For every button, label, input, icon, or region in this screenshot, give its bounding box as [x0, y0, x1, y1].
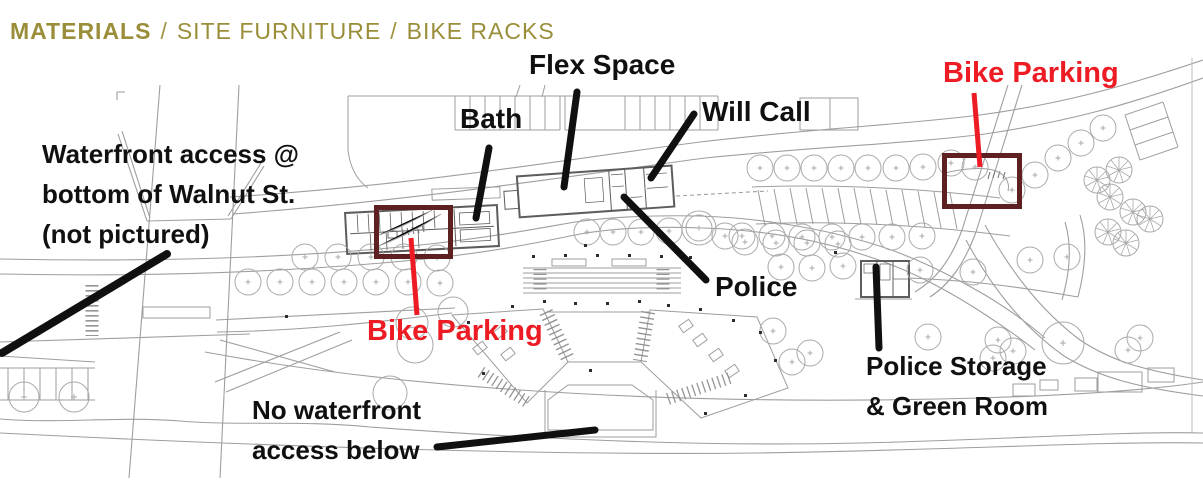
flex-space-label: Flex Space	[529, 50, 675, 80]
bike-parking-highlight-box-left	[374, 205, 453, 259]
police-label: Police	[715, 272, 797, 302]
site-plan-page: MATERIALS / SITE FURNITURE / BIKE RACKS …	[0, 0, 1203, 480]
waterfront-access-label: Waterfront access @ bottom of Walnut St.…	[42, 134, 299, 254]
breadcrumb-bike-racks: BIKE RACKS	[407, 18, 555, 45]
breadcrumb-site-furniture: SITE FURNITURE	[177, 18, 381, 45]
bike-parking-right-label: Bike Parking	[943, 58, 1119, 88]
breadcrumb-materials: MATERIALS	[10, 18, 151, 45]
breadcrumb-separator-1: /	[160, 18, 167, 45]
no-waterfront-access-label: No waterfront access below	[252, 390, 421, 470]
bike-parking-highlight-box-right	[942, 153, 1022, 209]
breadcrumb-title: MATERIALS / SITE FURNITURE / BIKE RACKS	[10, 18, 555, 45]
will-call-label: Will Call	[702, 97, 811, 127]
police-storage-label: Police Storage & Green Room	[866, 346, 1048, 426]
bike-parking-left-label: Bike Parking	[367, 316, 543, 346]
bath-label: Bath	[460, 104, 522, 134]
breadcrumb-separator-2: /	[390, 18, 397, 45]
